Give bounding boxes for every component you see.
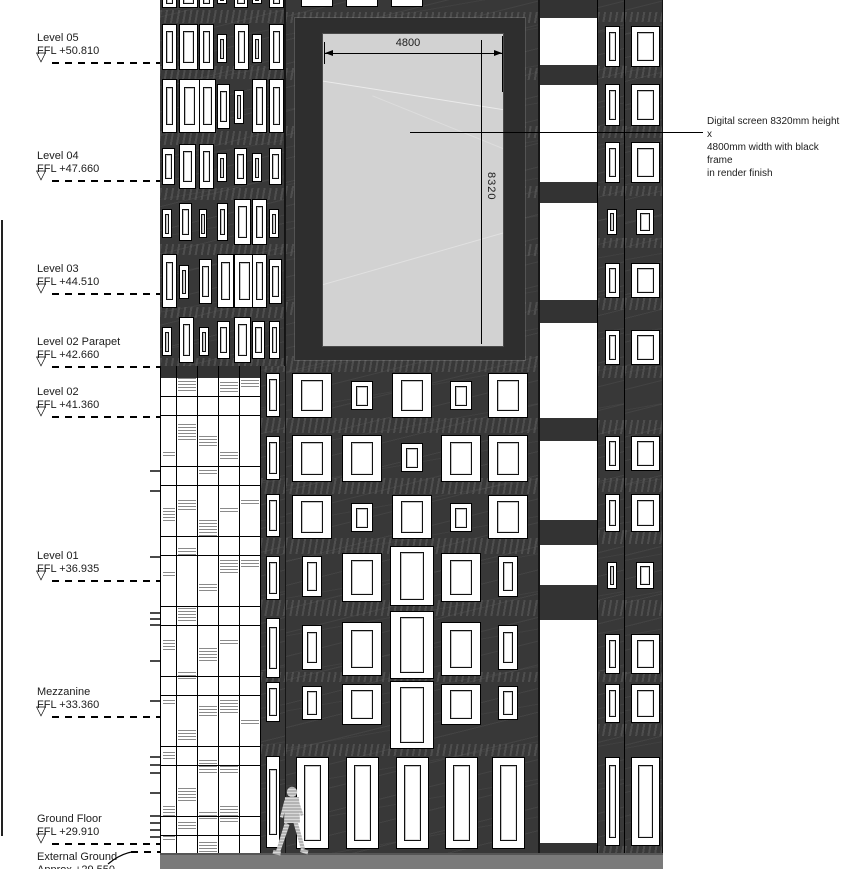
level-label: Level 02 ParapetFFL +42.660 <box>37 336 157 362</box>
hatch-band <box>625 724 662 736</box>
level-name: Mezzanine <box>37 686 157 699</box>
window <box>162 24 177 70</box>
window <box>342 553 382 602</box>
floor-line <box>161 625 260 626</box>
blind-lines <box>163 640 175 652</box>
hatch-band <box>160 131 284 145</box>
datum-triangle-icon: ▽ <box>36 282 46 294</box>
blind-lines <box>178 500 196 512</box>
blind-lines <box>220 766 238 775</box>
hatch-band <box>625 298 662 310</box>
datum-dashed-line <box>52 716 160 718</box>
tick-mark <box>150 700 160 702</box>
blind-lines <box>199 648 217 663</box>
tick-mark <box>150 792 160 794</box>
window <box>605 494 620 532</box>
tick-mark <box>150 764 160 766</box>
window <box>266 494 280 537</box>
hatch-band <box>598 724 624 736</box>
window <box>234 148 247 185</box>
window <box>445 757 478 849</box>
window <box>390 681 434 749</box>
window-partial <box>391 0 423 7</box>
window <box>631 84 660 126</box>
tick-mark <box>150 624 160 626</box>
window <box>441 553 481 602</box>
blind-lines <box>178 608 196 623</box>
blind-lines <box>178 548 196 557</box>
window <box>631 494 660 532</box>
window <box>302 556 322 597</box>
tick-mark <box>150 756 160 758</box>
window <box>234 24 249 70</box>
spandrel-band <box>540 182 597 203</box>
window <box>396 757 429 849</box>
window <box>636 209 654 235</box>
window <box>492 757 525 849</box>
floor-line <box>161 606 260 607</box>
blind-lines <box>220 452 238 461</box>
floor-line <box>161 555 260 556</box>
blind-lines <box>163 836 175 842</box>
level-ffl: FFL +47.660 <box>37 163 157 176</box>
hatch-band <box>261 478 285 494</box>
window <box>450 381 472 410</box>
external-ground-leader <box>100 845 140 869</box>
hatch-band <box>598 186 624 196</box>
window <box>179 24 198 70</box>
floor-line <box>161 835 260 836</box>
window <box>292 495 332 539</box>
extent-line <box>1 220 3 836</box>
dim-extension-right <box>502 36 503 92</box>
datum-triangle-icon: ▽ <box>36 405 46 417</box>
window <box>269 79 284 133</box>
blind-lines <box>220 560 238 575</box>
window <box>631 684 660 723</box>
window <box>234 90 244 124</box>
window <box>252 254 267 308</box>
window <box>392 495 432 539</box>
floor-line <box>161 676 260 677</box>
window <box>342 435 382 482</box>
window <box>199 259 212 304</box>
blind-lines <box>178 378 196 393</box>
window <box>269 209 279 238</box>
datum-dashed-line <box>52 580 160 582</box>
hatch-band <box>261 538 285 554</box>
window <box>252 34 262 63</box>
window <box>199 144 214 189</box>
mullion <box>239 366 240 855</box>
hatch-band <box>286 418 538 433</box>
tick-mark <box>150 822 160 824</box>
hatch-band <box>598 66 624 78</box>
blind-lines <box>178 424 196 442</box>
blind-lines <box>178 788 196 803</box>
window <box>607 562 617 589</box>
window <box>631 330 660 365</box>
window <box>252 199 267 245</box>
hatch-band <box>598 600 624 616</box>
spandrel-band <box>540 418 597 441</box>
blind-lines <box>241 720 259 726</box>
window <box>179 317 194 363</box>
window <box>390 546 434 606</box>
dim-arrow-left <box>325 50 333 56</box>
blind-lines <box>220 382 238 394</box>
window-partial <box>301 0 333 7</box>
blind-lines <box>199 520 217 538</box>
blind-lines <box>163 572 175 578</box>
window <box>605 142 620 183</box>
datum-dashed-line <box>52 62 160 64</box>
level-label: Level 05FFL +50.810 <box>37 32 157 58</box>
window <box>269 259 282 304</box>
level-name: Level 03 <box>37 263 157 276</box>
dim-line-width <box>325 53 502 54</box>
dim-line-height <box>481 40 482 344</box>
level-label: Ground FloorFFL +29.910 <box>37 813 157 839</box>
blind-lines <box>199 436 217 448</box>
spandrel-band <box>540 843 597 853</box>
spandrel-band <box>540 65 597 85</box>
floor-line <box>161 746 260 747</box>
hatch-band <box>625 530 662 544</box>
blind-lines <box>178 730 196 742</box>
window <box>179 265 189 299</box>
window <box>605 330 620 365</box>
blind-lines <box>241 560 259 569</box>
tick-mark <box>150 612 160 614</box>
window <box>217 321 230 359</box>
window <box>266 618 280 678</box>
annotation-leader-line <box>410 132 703 133</box>
datum-dashed-line <box>52 416 160 418</box>
level-label: Level 04FFL +47.660 <box>37 150 157 176</box>
window <box>488 373 528 418</box>
window <box>631 436 660 471</box>
blind-lines <box>178 672 196 681</box>
window <box>234 0 248 8</box>
level-name: Ground Floor <box>37 813 157 826</box>
annotation-line-2: 4800mm width with black frame <box>707 141 847 167</box>
hatch-band <box>625 238 662 248</box>
hatch-band <box>261 744 285 756</box>
hatch-band <box>261 418 285 433</box>
hatch-band <box>598 530 624 544</box>
level-name: Level 04 <box>37 150 157 163</box>
facade-narrow-strip <box>260 366 285 855</box>
level-ffl: FFL +44.510 <box>37 276 157 289</box>
window <box>269 148 282 185</box>
datum-triangle-icon: ▽ <box>36 51 46 63</box>
tick-mark <box>150 660 160 662</box>
datum-triangle-icon: ▽ <box>36 355 46 367</box>
blind-lines <box>163 700 175 706</box>
window <box>498 686 518 720</box>
blind-lines <box>178 822 196 831</box>
window <box>351 381 373 410</box>
spandrel-band <box>540 300 597 323</box>
window <box>266 436 280 480</box>
window <box>266 556 280 600</box>
hatch-band <box>625 420 662 434</box>
window <box>342 622 382 676</box>
window <box>217 153 227 182</box>
level-ffl: FFL +36.935 <box>37 563 157 576</box>
window <box>607 209 617 235</box>
window <box>162 254 177 308</box>
hatch-band <box>625 366 662 378</box>
tick-mark <box>150 836 160 838</box>
mullion <box>197 366 198 855</box>
digital-screen <box>322 33 504 347</box>
hatch-band <box>598 12 624 22</box>
elevation-drawing: 4800 8320 Digital screen 8320mm height x… <box>0 0 849 869</box>
tick-mark <box>150 815 160 817</box>
window <box>199 79 216 133</box>
external-ground-datum-line <box>131 851 161 853</box>
blind-lines <box>199 760 217 775</box>
window <box>498 556 518 597</box>
window <box>199 0 214 8</box>
window <box>217 203 228 241</box>
datum-triangle-icon: ▽ <box>36 569 46 581</box>
blind-lines <box>220 640 238 646</box>
glazing-column <box>540 0 597 855</box>
blind-lines <box>163 452 175 458</box>
dim-arrow-right <box>494 50 502 56</box>
blind-lines <box>241 500 259 506</box>
blind-lines <box>220 806 238 824</box>
window <box>605 84 620 126</box>
window <box>441 684 481 725</box>
datum-triangle-icon: ▽ <box>36 832 46 844</box>
window <box>252 321 265 359</box>
window <box>179 203 192 241</box>
window <box>199 209 207 238</box>
dim-height-value: 8320 <box>485 172 497 200</box>
level-ffl: FFL +33.360 <box>37 699 157 712</box>
window <box>605 263 620 298</box>
window <box>292 435 332 482</box>
mullion <box>218 366 219 855</box>
window <box>199 327 209 356</box>
tick-mark <box>150 556 160 558</box>
spandrel-band <box>540 0 597 18</box>
window <box>266 373 280 417</box>
window <box>269 0 284 8</box>
spandrel-band <box>540 520 597 545</box>
blind-lines <box>220 700 238 715</box>
window <box>162 0 177 8</box>
hatch-band <box>625 478 662 492</box>
screen-annotation: Digital screen 8320mm height x 4800mm wi… <box>707 115 847 180</box>
annotation-line-1: Digital screen 8320mm height x <box>707 115 847 141</box>
window <box>269 24 284 70</box>
datum-dashed-line <box>52 366 160 368</box>
window <box>217 254 234 308</box>
window <box>441 435 481 482</box>
hatch-band <box>160 10 284 23</box>
window <box>179 79 200 133</box>
blind-lines <box>163 752 175 761</box>
window <box>605 436 620 471</box>
level-name: Level 01 <box>37 550 157 563</box>
window <box>179 0 198 8</box>
tick-mark <box>150 829 160 831</box>
window <box>162 79 177 133</box>
level-ffl: FFL +41.360 <box>37 399 157 412</box>
floor-line <box>161 396 260 397</box>
hatch-band <box>261 600 285 616</box>
hatch-band <box>598 420 624 434</box>
window <box>488 495 528 539</box>
hatch-band <box>598 366 624 378</box>
window <box>631 263 660 298</box>
level-label: Level 01FFL +36.935 <box>37 550 157 576</box>
datum-triangle-icon: ▽ <box>36 705 46 717</box>
floor-line <box>161 466 260 467</box>
window <box>488 435 528 482</box>
floor-line <box>161 415 260 416</box>
window <box>252 79 267 133</box>
window <box>217 34 227 63</box>
window <box>346 757 379 849</box>
datum-dashed-line <box>52 180 160 182</box>
datum-triangle-icon: ▽ <box>36 169 46 181</box>
ground-strip <box>160 853 663 869</box>
facade-right-wide <box>624 0 663 855</box>
level-ffl: FFL +29.910 <box>37 826 157 839</box>
window <box>302 686 322 720</box>
tick-mark <box>150 470 160 472</box>
floor-line <box>161 695 260 696</box>
floor-line <box>161 485 260 486</box>
hatch-band <box>598 478 624 492</box>
annotation-line-3: in render finish <box>707 167 847 180</box>
window <box>631 757 660 846</box>
level-label: Level 02FFL +41.360 <box>37 386 157 412</box>
tick-mark <box>150 618 160 620</box>
hatch-band <box>625 12 662 22</box>
window <box>605 757 620 846</box>
blind-lines <box>199 470 217 476</box>
datum-dashed-line <box>52 293 160 295</box>
window <box>390 611 434 679</box>
tick-mark <box>150 772 160 774</box>
window <box>605 634 620 674</box>
hatch-band <box>598 298 624 310</box>
window <box>342 684 382 725</box>
curtain-wall <box>160 366 260 855</box>
window <box>441 622 481 676</box>
person-silhouette <box>270 786 314 860</box>
blind-lines <box>163 508 175 523</box>
window <box>162 148 175 185</box>
window <box>234 199 251 245</box>
window <box>266 682 280 722</box>
hatch-band <box>598 238 624 248</box>
window <box>605 26 620 67</box>
window <box>392 373 432 418</box>
tick-mark <box>150 490 160 492</box>
window <box>636 562 654 589</box>
dim-width-value: 4800 <box>378 37 438 49</box>
level-name: Level 05 <box>37 32 157 45</box>
level-name: Level 02 Parapet <box>37 336 157 349</box>
spandrel-band <box>540 585 597 620</box>
window <box>162 209 172 238</box>
window <box>605 684 620 723</box>
mullion <box>176 366 177 855</box>
window <box>450 503 472 532</box>
level-name: Level 02 <box>37 386 157 399</box>
window <box>234 317 251 363</box>
window <box>401 443 423 472</box>
window <box>217 0 227 4</box>
window <box>199 24 214 70</box>
blind-lines <box>199 584 217 593</box>
hatch-band <box>625 186 662 196</box>
window <box>269 321 280 359</box>
hatch-band <box>261 366 285 372</box>
window <box>302 625 322 670</box>
window <box>252 153 262 182</box>
facade-upper-left-windows <box>160 0 285 366</box>
window <box>252 0 262 4</box>
level-ffl: FFL +42.660 <box>37 349 157 362</box>
blind-lines <box>241 380 259 389</box>
level-ffl: FFL +50.810 <box>37 45 157 58</box>
window <box>631 142 660 183</box>
level-label: Level 03FFL +44.510 <box>37 263 157 289</box>
window <box>217 84 230 129</box>
window <box>292 373 332 418</box>
window-partial <box>346 0 378 7</box>
window <box>162 327 172 356</box>
facade-right-narrow <box>597 0 624 855</box>
hatch-band <box>625 600 662 616</box>
window <box>631 634 660 674</box>
hatch-band <box>625 66 662 78</box>
level-label: MezzanineFFL +33.360 <box>37 686 157 712</box>
blind-lines <box>220 508 238 514</box>
window <box>631 26 660 67</box>
blind-lines <box>199 812 217 821</box>
window <box>351 503 373 532</box>
window <box>179 144 196 189</box>
window <box>498 625 518 670</box>
blind-lines <box>163 806 175 818</box>
blind-lines <box>199 706 217 718</box>
